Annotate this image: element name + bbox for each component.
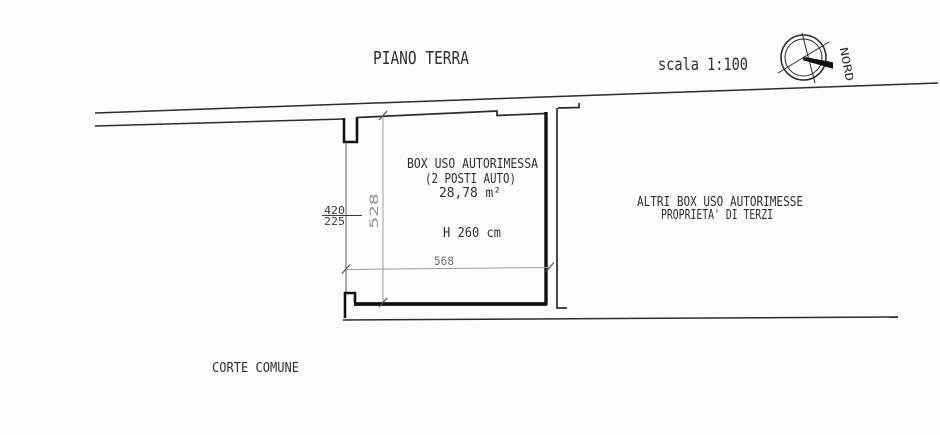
north-label: NORD (837, 46, 856, 82)
depth-dimension-value: 528 (367, 193, 381, 228)
top-wall-line (357, 111, 545, 118)
floor-plan-drawing: NORD PIANO TERRA scala 1:100 BOX USO AUT… (0, 0, 940, 435)
door-height-value: 225 (324, 215, 345, 228)
room-area-label: 28,78 m² (439, 186, 501, 201)
width-dimension-value: 568 (434, 254, 454, 268)
plan-title: PIANO TERRA (373, 48, 469, 69)
room-name-line1: BOX USO AUTORIMESSA (407, 157, 538, 172)
bottom-boundary-line (343, 317, 898, 320)
compass-north-needle (803, 57, 833, 69)
right-inner-wall-line (557, 108, 567, 308)
scale-label: scala 1:100 (658, 55, 748, 75)
courtyard-label: CORTE COMUNE (212, 361, 299, 376)
compass: NORD (778, 33, 856, 83)
lower-boundary-line-left (95, 119, 344, 126)
room-name-line2: (2 POSTI AUTO) (425, 172, 516, 187)
floor-plan-canvas: NORD PIANO TERRA scala 1:100 BOX USO AUT… (0, 0, 940, 435)
room-height-label: H 260 cm (443, 226, 501, 241)
top-wall-notch (344, 117, 357, 142)
right-step-line (558, 103, 579, 108)
upper-boundary-line (95, 83, 938, 113)
neighbor-label-line2: PROPRIETA' DI TERZI (661, 208, 773, 223)
plan-walls (95, 83, 938, 320)
